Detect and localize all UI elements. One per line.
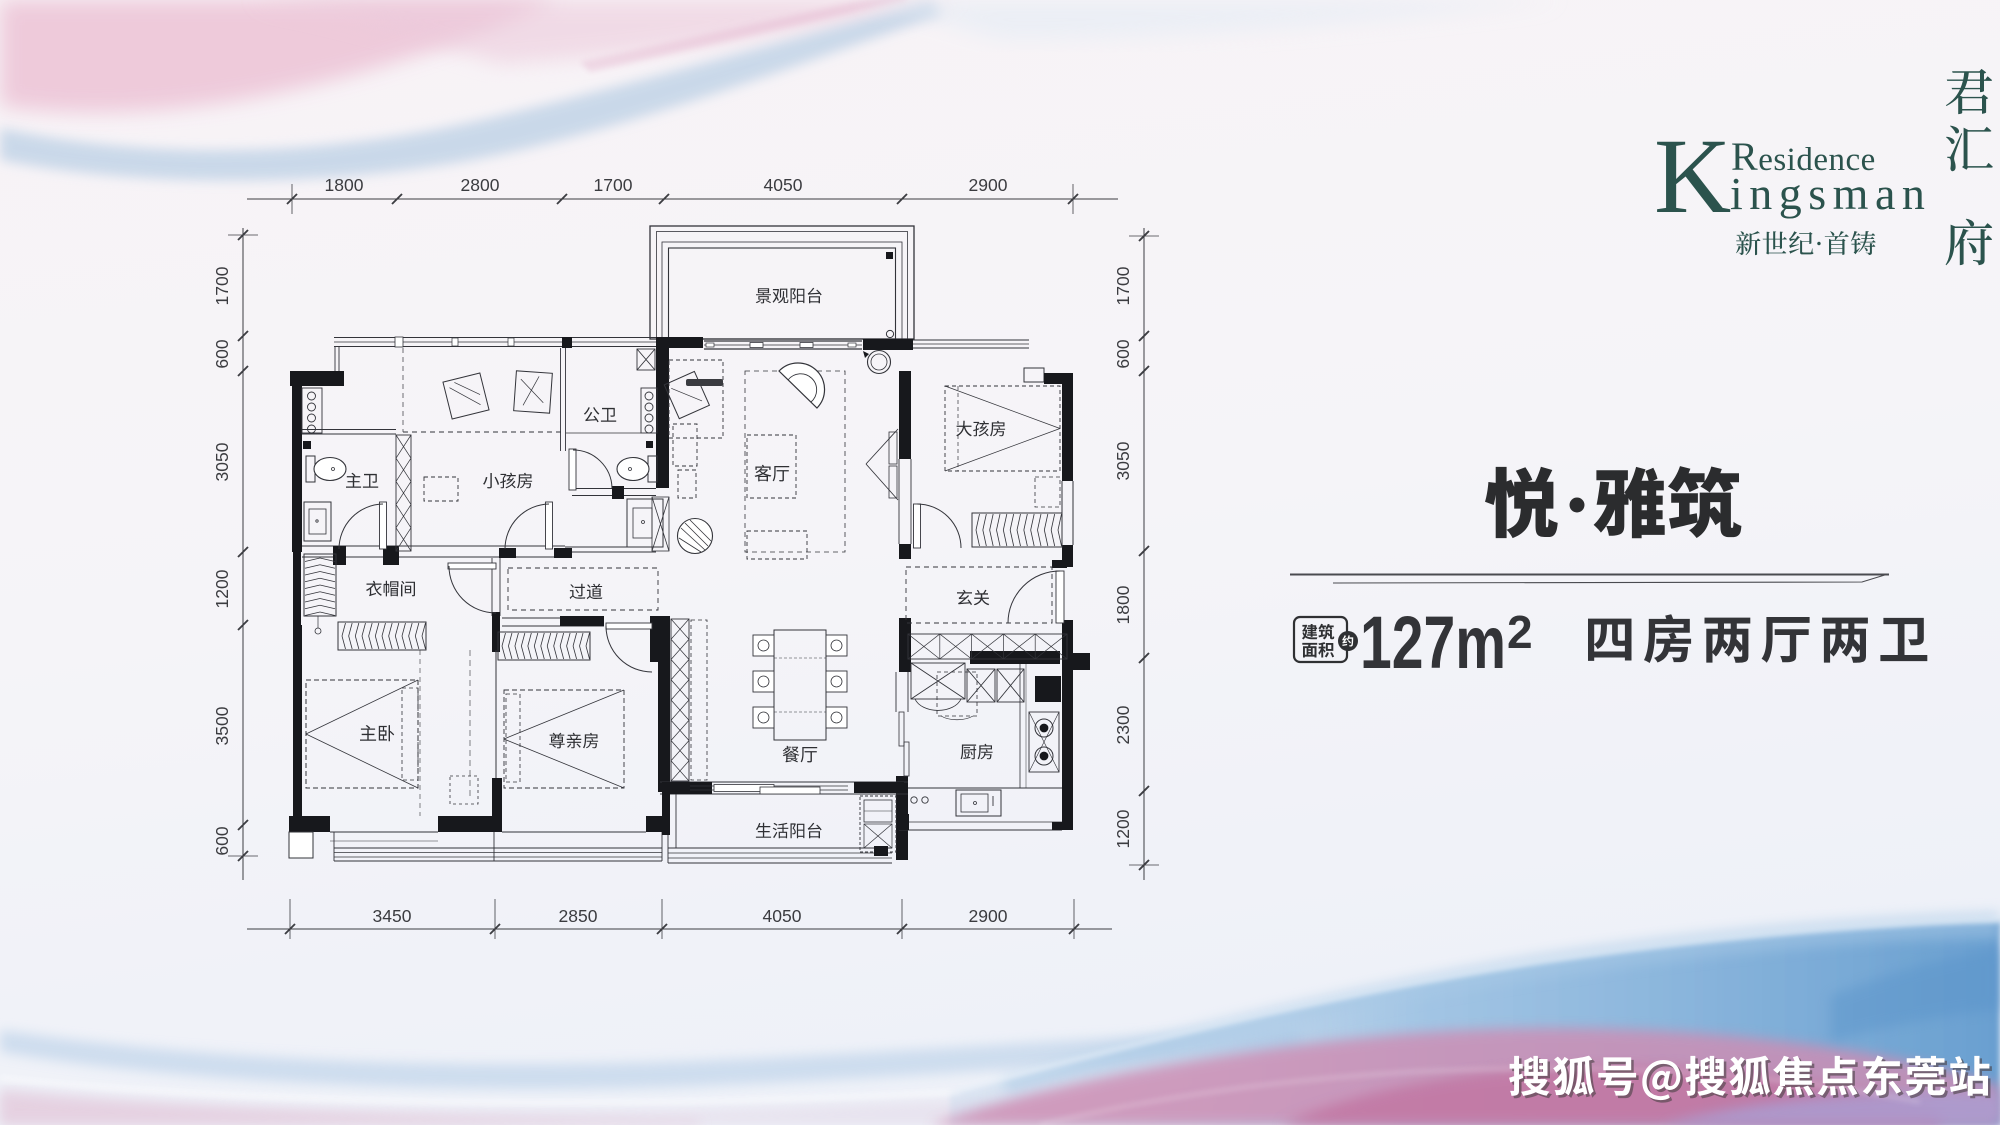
svg-text:4050: 4050 [764,175,803,195]
svg-text:2900: 2900 [969,906,1008,926]
svg-text:2300: 2300 [1113,705,1133,744]
svg-text:2900: 2900 [969,175,1008,195]
svg-text:3050: 3050 [1113,441,1133,480]
svg-text:2: 2 [1507,606,1533,658]
svg-text:K: K [1654,118,1731,236]
svg-text:4050: 4050 [763,906,802,926]
svg-text:1800: 1800 [1113,585,1133,624]
svg-text:1700: 1700 [594,175,633,195]
svg-text:600: 600 [212,826,232,855]
svg-text:ingsman: ingsman [1730,168,1931,219]
svg-text:1200: 1200 [1113,809,1133,848]
svg-text:1200: 1200 [212,569,232,608]
svg-text:3050: 3050 [212,442,232,481]
svg-text:127m: 127m [1360,601,1506,684]
svg-text:600: 600 [1113,339,1133,368]
svg-text:3450: 3450 [373,906,412,926]
svg-text:600: 600 [212,339,232,368]
svg-text:1700: 1700 [212,266,232,305]
svg-text:2850: 2850 [559,906,598,926]
svg-text:1700: 1700 [1113,266,1133,305]
svg-text:3500: 3500 [212,706,232,745]
svg-text:1800: 1800 [325,175,364,195]
svg-text:2800: 2800 [461,175,500,195]
